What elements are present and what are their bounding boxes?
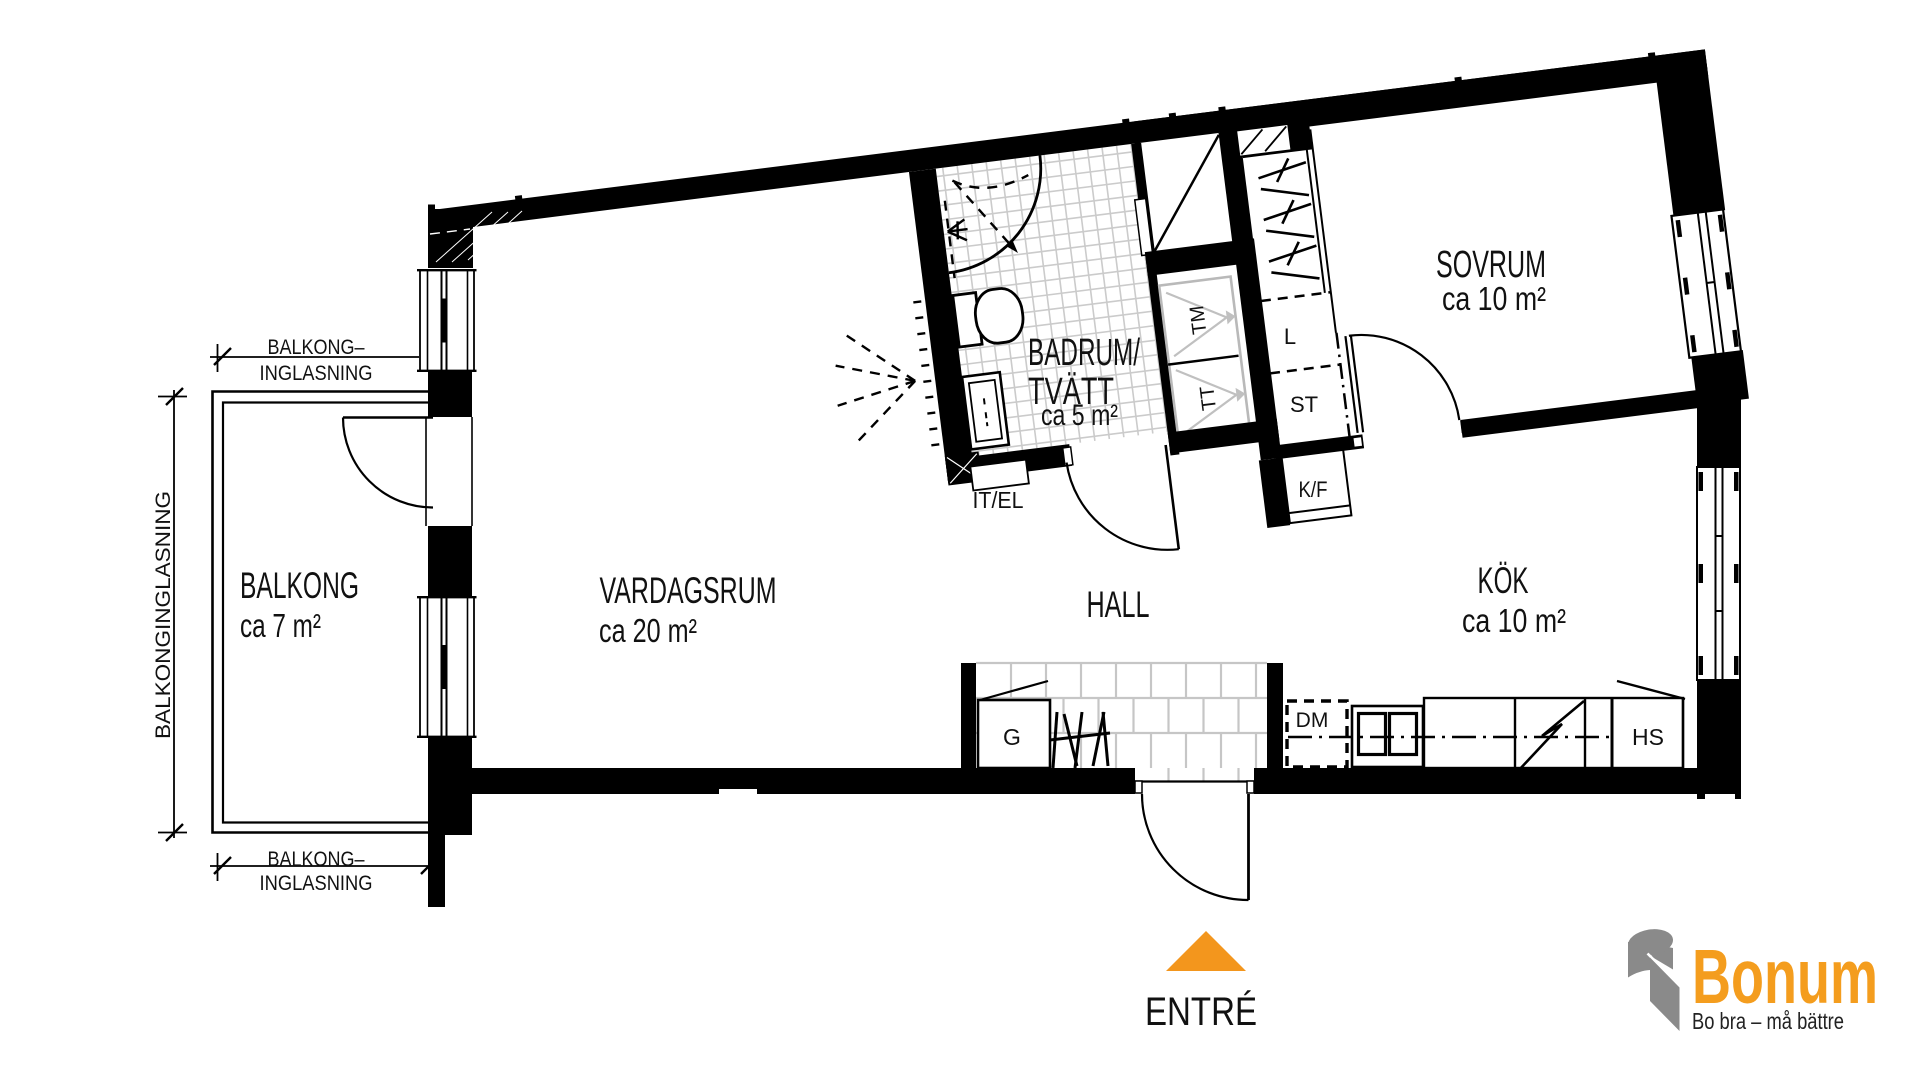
- svg-text:VARDAGSRUM: VARDAGSRUM: [600, 570, 777, 611]
- svg-text:K/F: K/F: [1299, 477, 1328, 502]
- svg-text:L: L: [1284, 324, 1296, 349]
- svg-text:BALKONG: BALKONG: [240, 565, 359, 606]
- svg-text:HS: HS: [1632, 724, 1664, 750]
- svg-text:HALL: HALL: [1087, 584, 1150, 625]
- svg-text:TT: TT: [1196, 385, 1221, 412]
- svg-text:INGLASNING: INGLASNING: [260, 362, 373, 385]
- svg-text:TM: TM: [1186, 304, 1211, 335]
- svg-text:ca 7 m²: ca 7 m²: [240, 607, 321, 644]
- svg-text:ST: ST: [1290, 392, 1318, 417]
- svg-text:DM: DM: [1296, 709, 1329, 732]
- svg-text:ca 5 m²: ca 5 m²: [1041, 399, 1118, 432]
- svg-text:KÖK: KÖK: [1478, 560, 1529, 601]
- svg-text:INGLASNING: INGLASNING: [260, 872, 373, 895]
- svg-text:BALKONG–: BALKONG–: [268, 336, 365, 359]
- svg-text:ca 10 m²: ca 10 m²: [1462, 602, 1566, 639]
- svg-text:BADRUM/: BADRUM/: [1028, 332, 1140, 374]
- svg-text:ca 10 m²: ca 10 m²: [1442, 280, 1546, 317]
- svg-text:G: G: [1003, 724, 1021, 750]
- svg-text:ENTRÉ: ENTRÉ: [1145, 989, 1257, 1034]
- svg-text:ca 20 m²: ca 20 m²: [599, 612, 697, 649]
- svg-text:BALKONGINGLASNING: BALKONGINGLASNING: [152, 491, 175, 739]
- svg-text:Bo bra – må bättre: Bo bra – må bättre: [1692, 1008, 1844, 1034]
- svg-text:IT/EL: IT/EL: [973, 487, 1024, 513]
- svg-text:BALKONG–: BALKONG–: [268, 848, 365, 871]
